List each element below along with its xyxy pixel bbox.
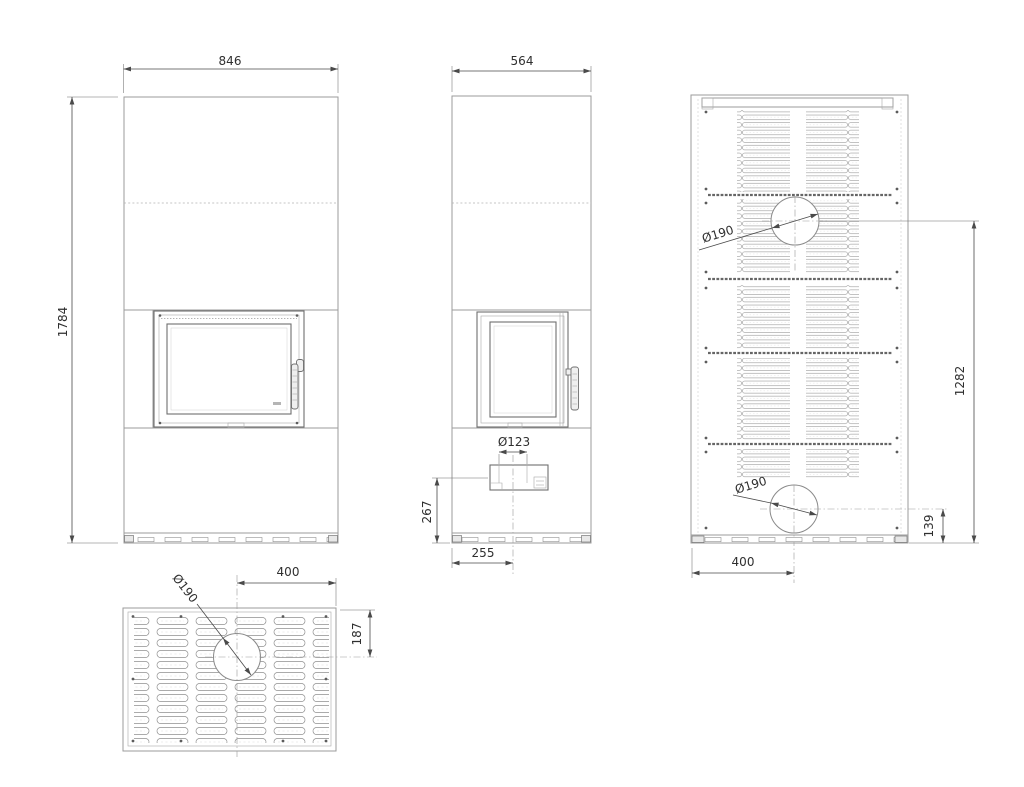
side-inlet-height-label: 267 (420, 501, 434, 524)
front-body (124, 97, 338, 543)
front-width-label: 846 (219, 54, 242, 68)
back-flue-height-label: 1282 (953, 366, 967, 397)
top-flue-offset-x-dimension: 400 (237, 565, 336, 606)
side-inlet-diameter-label: Ø123 (498, 435, 530, 449)
front-door-logo (273, 402, 281, 405)
top-flue-offset-y-dimension: 187 (340, 610, 375, 657)
back-flue-offset-dimension: 400 (692, 548, 794, 578)
top-flue-offset-y-label: 187 (350, 623, 364, 646)
side-width-dimension: 564 (452, 54, 591, 92)
back-body (691, 95, 908, 543)
side-body (452, 96, 591, 543)
front-height-label: 1784 (56, 307, 70, 338)
front-width-dimension: 846 (124, 54, 339, 93)
back-lower-flue-height-label: 139 (922, 515, 936, 538)
drawing-canvas: 846 1784 (0, 0, 1024, 787)
back-flue-offset-label: 400 (732, 555, 755, 569)
front-view: 846 1784 (56, 54, 338, 543)
back-base (691, 535, 908, 543)
back-lower-flue-height-dimension: 139 (922, 509, 943, 543)
back-view: Ø190 Ø190 1282 139 (691, 95, 979, 583)
side-view: 564 Ø123 267 255 (420, 54, 591, 575)
top-flue-offset-x-label: 400 (277, 565, 300, 579)
front-height-dimension: 1784 (56, 97, 118, 543)
side-inlet-offset-label: 255 (472, 546, 495, 560)
technical-drawing: 846 1784 (0, 0, 1024, 787)
side-inlet-offset-dimension: 255 (452, 546, 513, 568)
side-width-label: 564 (511, 54, 534, 68)
top-flue-diameter-label: Ø190 (170, 571, 201, 605)
top-view: Ø190 400 187 (123, 565, 377, 757)
